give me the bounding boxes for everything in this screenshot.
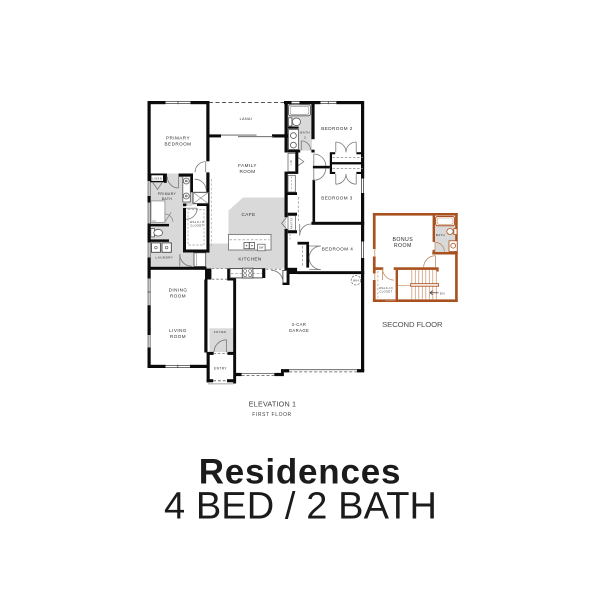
svg-text:LAUNDRY: LAUNDRY xyxy=(156,256,174,260)
svg-text:BEDROOM 3: BEDROOM 3 xyxy=(321,196,353,201)
svg-text:ENTRY: ENTRY xyxy=(214,366,227,370)
svg-text:ROOM: ROOM xyxy=(239,169,255,174)
svg-text:BEDROOM 4: BEDROOM 4 xyxy=(322,246,354,251)
svg-text:CLOSET: CLOSET xyxy=(190,224,203,228)
svg-text:BATH: BATH xyxy=(300,131,310,135)
svg-text:PANTRY: PANTRY xyxy=(290,217,293,229)
svg-text:ROOM: ROOM xyxy=(394,243,412,249)
svg-text:BATH: BATH xyxy=(436,233,445,237)
svg-text:BEDROOM: BEDROOM xyxy=(165,141,192,146)
svg-text:DW: DW xyxy=(259,247,264,250)
svg-text:WALK-IN: WALK-IN xyxy=(379,286,393,290)
svg-text:SECOND FLOOR: SECOND FLOOR xyxy=(382,320,443,329)
svg-text:CAFE: CAFE xyxy=(241,212,255,217)
svg-text:FIRST FLOOR: FIRST FLOOR xyxy=(252,412,292,418)
svg-text:PRIMARY: PRIMARY xyxy=(166,135,190,140)
svg-text:3-CAR: 3-CAR xyxy=(292,322,307,327)
svg-text:LIN: LIN xyxy=(290,160,293,165)
svg-text:DN: DN xyxy=(440,291,445,295)
svg-text:ELEVATION 1: ELEVATION 1 xyxy=(249,400,296,409)
svg-text:KITCHEN: KITCHEN xyxy=(238,257,261,262)
svg-text:4 BED / 2 BATH: 4 BED / 2 BATH xyxy=(164,486,437,528)
svg-text:FAMILY: FAMILY xyxy=(238,163,257,168)
svg-text:WALK-IN: WALK-IN xyxy=(190,220,204,224)
svg-text:GARAGE: GARAGE xyxy=(289,328,310,333)
svg-text:WH: WH xyxy=(353,279,359,283)
svg-text:LIVING: LIVING xyxy=(169,328,187,333)
svg-text:ROOM: ROOM xyxy=(170,334,186,339)
svg-text:FOYER: FOYER xyxy=(214,330,227,334)
svg-text:PRIMARY: PRIMARY xyxy=(158,192,177,196)
svg-text:BATH: BATH xyxy=(162,197,173,201)
svg-text:LANAI: LANAI xyxy=(240,117,253,121)
svg-text:BEDROOM 2: BEDROOM 2 xyxy=(321,126,353,131)
svg-text:LINEN: LINEN xyxy=(152,177,162,181)
svg-text:DINING: DINING xyxy=(169,288,188,293)
svg-text:2: 2 xyxy=(304,135,306,139)
svg-text:CLOSET: CLOSET xyxy=(379,289,392,293)
svg-text:ROOM: ROOM xyxy=(170,294,186,299)
